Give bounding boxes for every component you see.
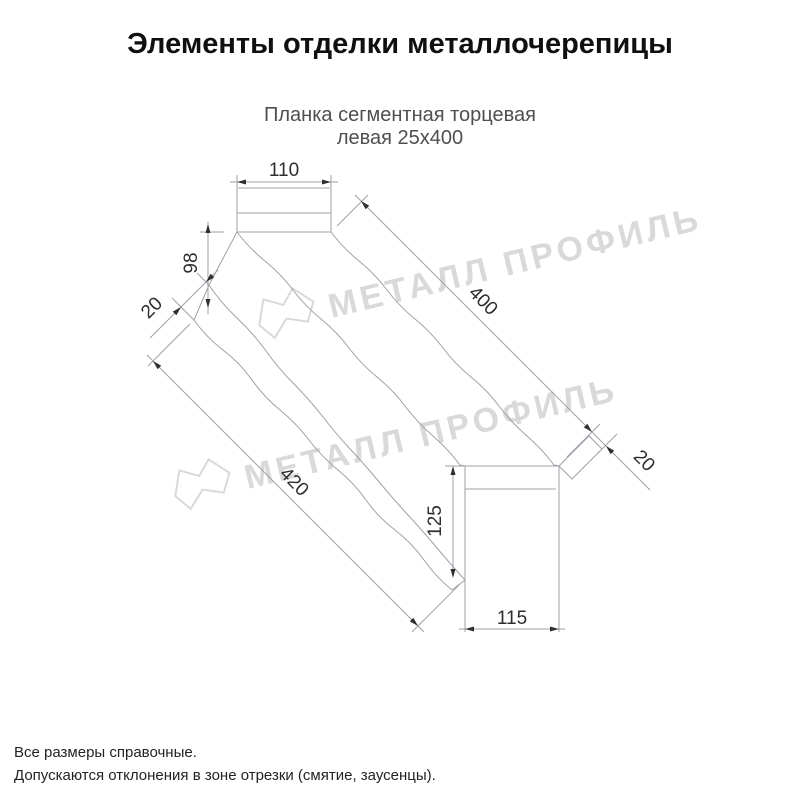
- dim-label: 98: [181, 252, 202, 273]
- ext-line: [148, 324, 190, 366]
- arrowhead: [237, 180, 246, 185]
- arrowhead: [206, 224, 211, 233]
- footnote-line2: Допускаются отклонения в зоне отрезки (с…: [14, 764, 436, 787]
- dim-label: 20: [629, 446, 659, 476]
- technical-drawing: МЕТАЛЛ ПРОФИЛЬ МЕТАЛЛ ПРОФИЛЬ: [0, 0, 800, 800]
- dim-line: [147, 355, 424, 632]
- ext-line: [412, 584, 460, 632]
- footnotes: Все размеры справочные. Допускаются откл…: [14, 741, 436, 787]
- watermark-lower: МЕТАЛЛ ПРОФИЛЬ: [169, 363, 622, 514]
- arrowhead: [322, 180, 331, 185]
- drawing-page: Элементы отделки металлочерепицы Планка …: [0, 0, 800, 800]
- dim-label: 110: [269, 160, 299, 181]
- ext-line: [567, 424, 600, 457]
- arrowhead: [550, 627, 559, 632]
- arrowhead: [451, 466, 456, 475]
- ext-line: [337, 195, 368, 226]
- dim-label: 115: [497, 608, 527, 629]
- ext-line: [597, 434, 617, 454]
- dim-bottom-edge-length: 420: [147, 324, 460, 632]
- dim-label: 125: [425, 505, 446, 537]
- near-end-face: [237, 188, 331, 232]
- watermark-upper: МЕТАЛЛ ПРОФИЛЬ: [253, 192, 706, 343]
- brand-logo-icon: [169, 455, 236, 511]
- far-corner-tab: [559, 436, 602, 479]
- dim-end-face-height: 125: [425, 466, 456, 578]
- watermark-text: МЕТАЛЛ ПРОФИЛЬ: [325, 200, 706, 326]
- arrowhead: [451, 569, 456, 578]
- ext-line: [197, 273, 209, 285]
- dim-label: 20: [137, 293, 167, 323]
- dim-top-flange-width: 110: [230, 160, 338, 187]
- ext-line: [172, 298, 194, 320]
- brand-logo-icon: [253, 284, 320, 340]
- arrowhead: [465, 627, 474, 632]
- dim-end-face-width: 115: [459, 608, 565, 632]
- footnote-line1: Все размеры справочные.: [14, 741, 436, 764]
- dim-near-hem: 20: [137, 270, 218, 338]
- arrowhead: [206, 299, 211, 308]
